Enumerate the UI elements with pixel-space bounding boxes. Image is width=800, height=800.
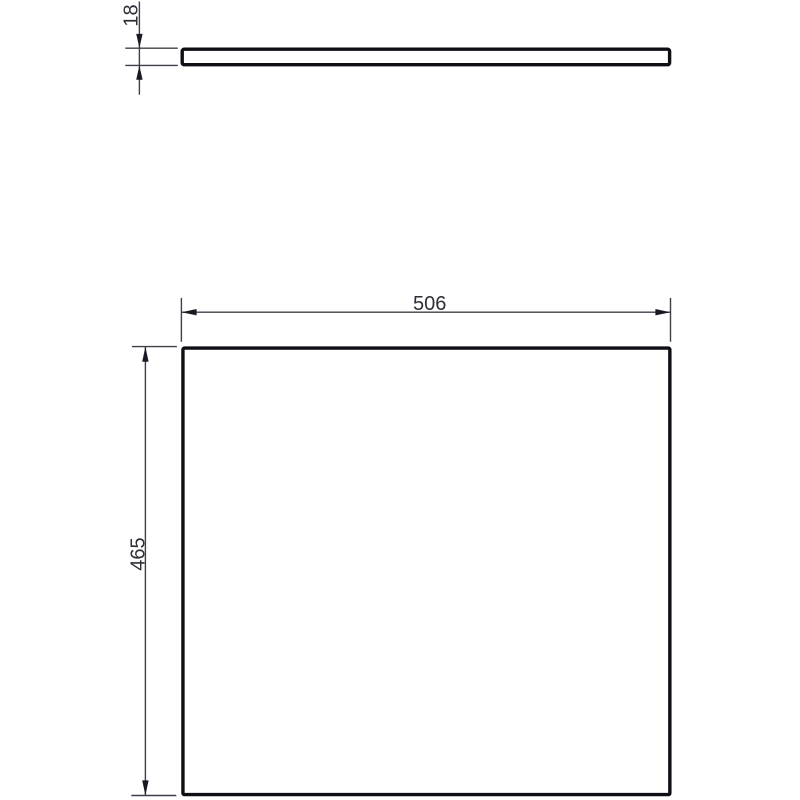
svg-text:465: 465 bbox=[127, 537, 149, 570]
svg-text:18: 18 bbox=[121, 4, 143, 26]
svg-text:506: 506 bbox=[413, 293, 446, 315]
